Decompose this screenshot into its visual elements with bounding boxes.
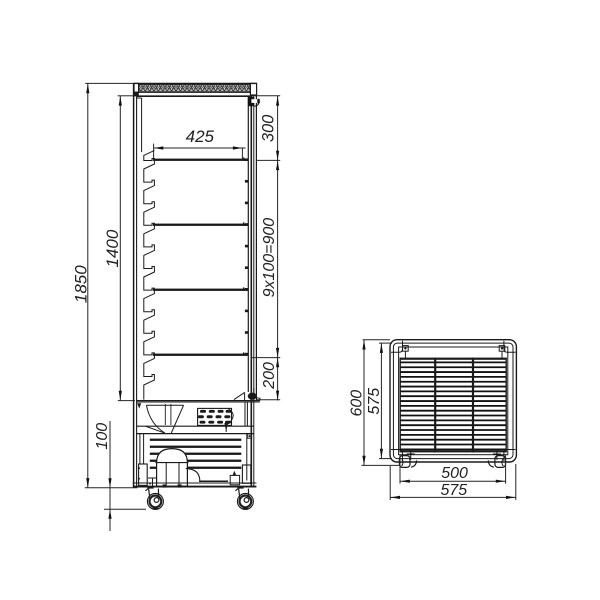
svg-text:100: 100 <box>94 423 111 450</box>
svg-text:9x100=900: 9x100=900 <box>261 218 278 298</box>
svg-text:1850: 1850 <box>71 265 90 303</box>
svg-text:600: 600 <box>349 390 366 417</box>
svg-text:575: 575 <box>440 482 467 499</box>
svg-text:425: 425 <box>186 127 215 146</box>
svg-text:500: 500 <box>441 465 468 482</box>
svg-text:575: 575 <box>366 388 383 415</box>
svg-text:1400: 1400 <box>103 229 122 267</box>
svg-text:200: 200 <box>261 362 278 390</box>
svg-text:300: 300 <box>259 114 277 142</box>
